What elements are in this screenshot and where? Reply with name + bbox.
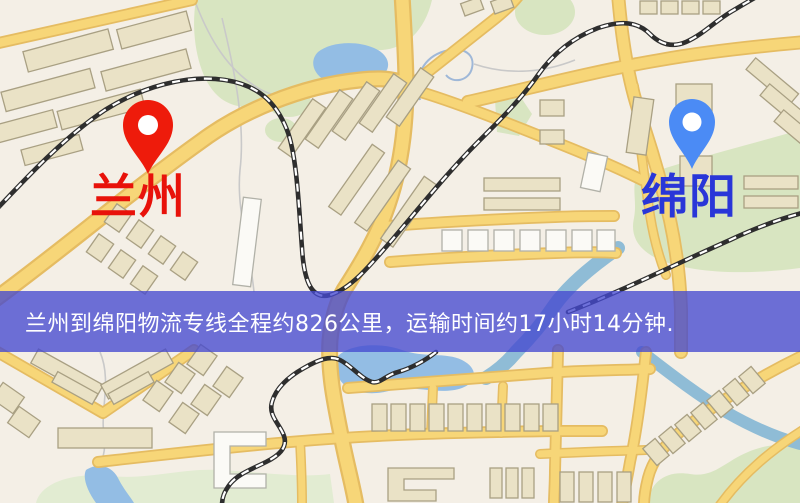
origin-pin[interactable] xyxy=(121,99,175,179)
red-location-pin-icon xyxy=(121,99,175,175)
destination-label: 绵阳 xyxy=(641,174,737,221)
route-banner: 兰州到绵阳物流专线全程约826公里，运输时间约17小时14分钟. xyxy=(0,291,800,352)
origin-label: 兰州 xyxy=(90,174,186,221)
map-canvas[interactable] xyxy=(0,0,800,503)
map-screenshot: 兰州 绵阳 兰州到绵阳物流专线全程约826公里，运输时间约17小时14分钟. xyxy=(0,0,800,503)
route-banner-text: 兰州到绵阳物流专线全程约826公里，运输时间约17小时14分钟. xyxy=(0,306,674,338)
destination-pin[interactable] xyxy=(667,98,717,174)
blue-location-pin-icon xyxy=(667,98,717,170)
